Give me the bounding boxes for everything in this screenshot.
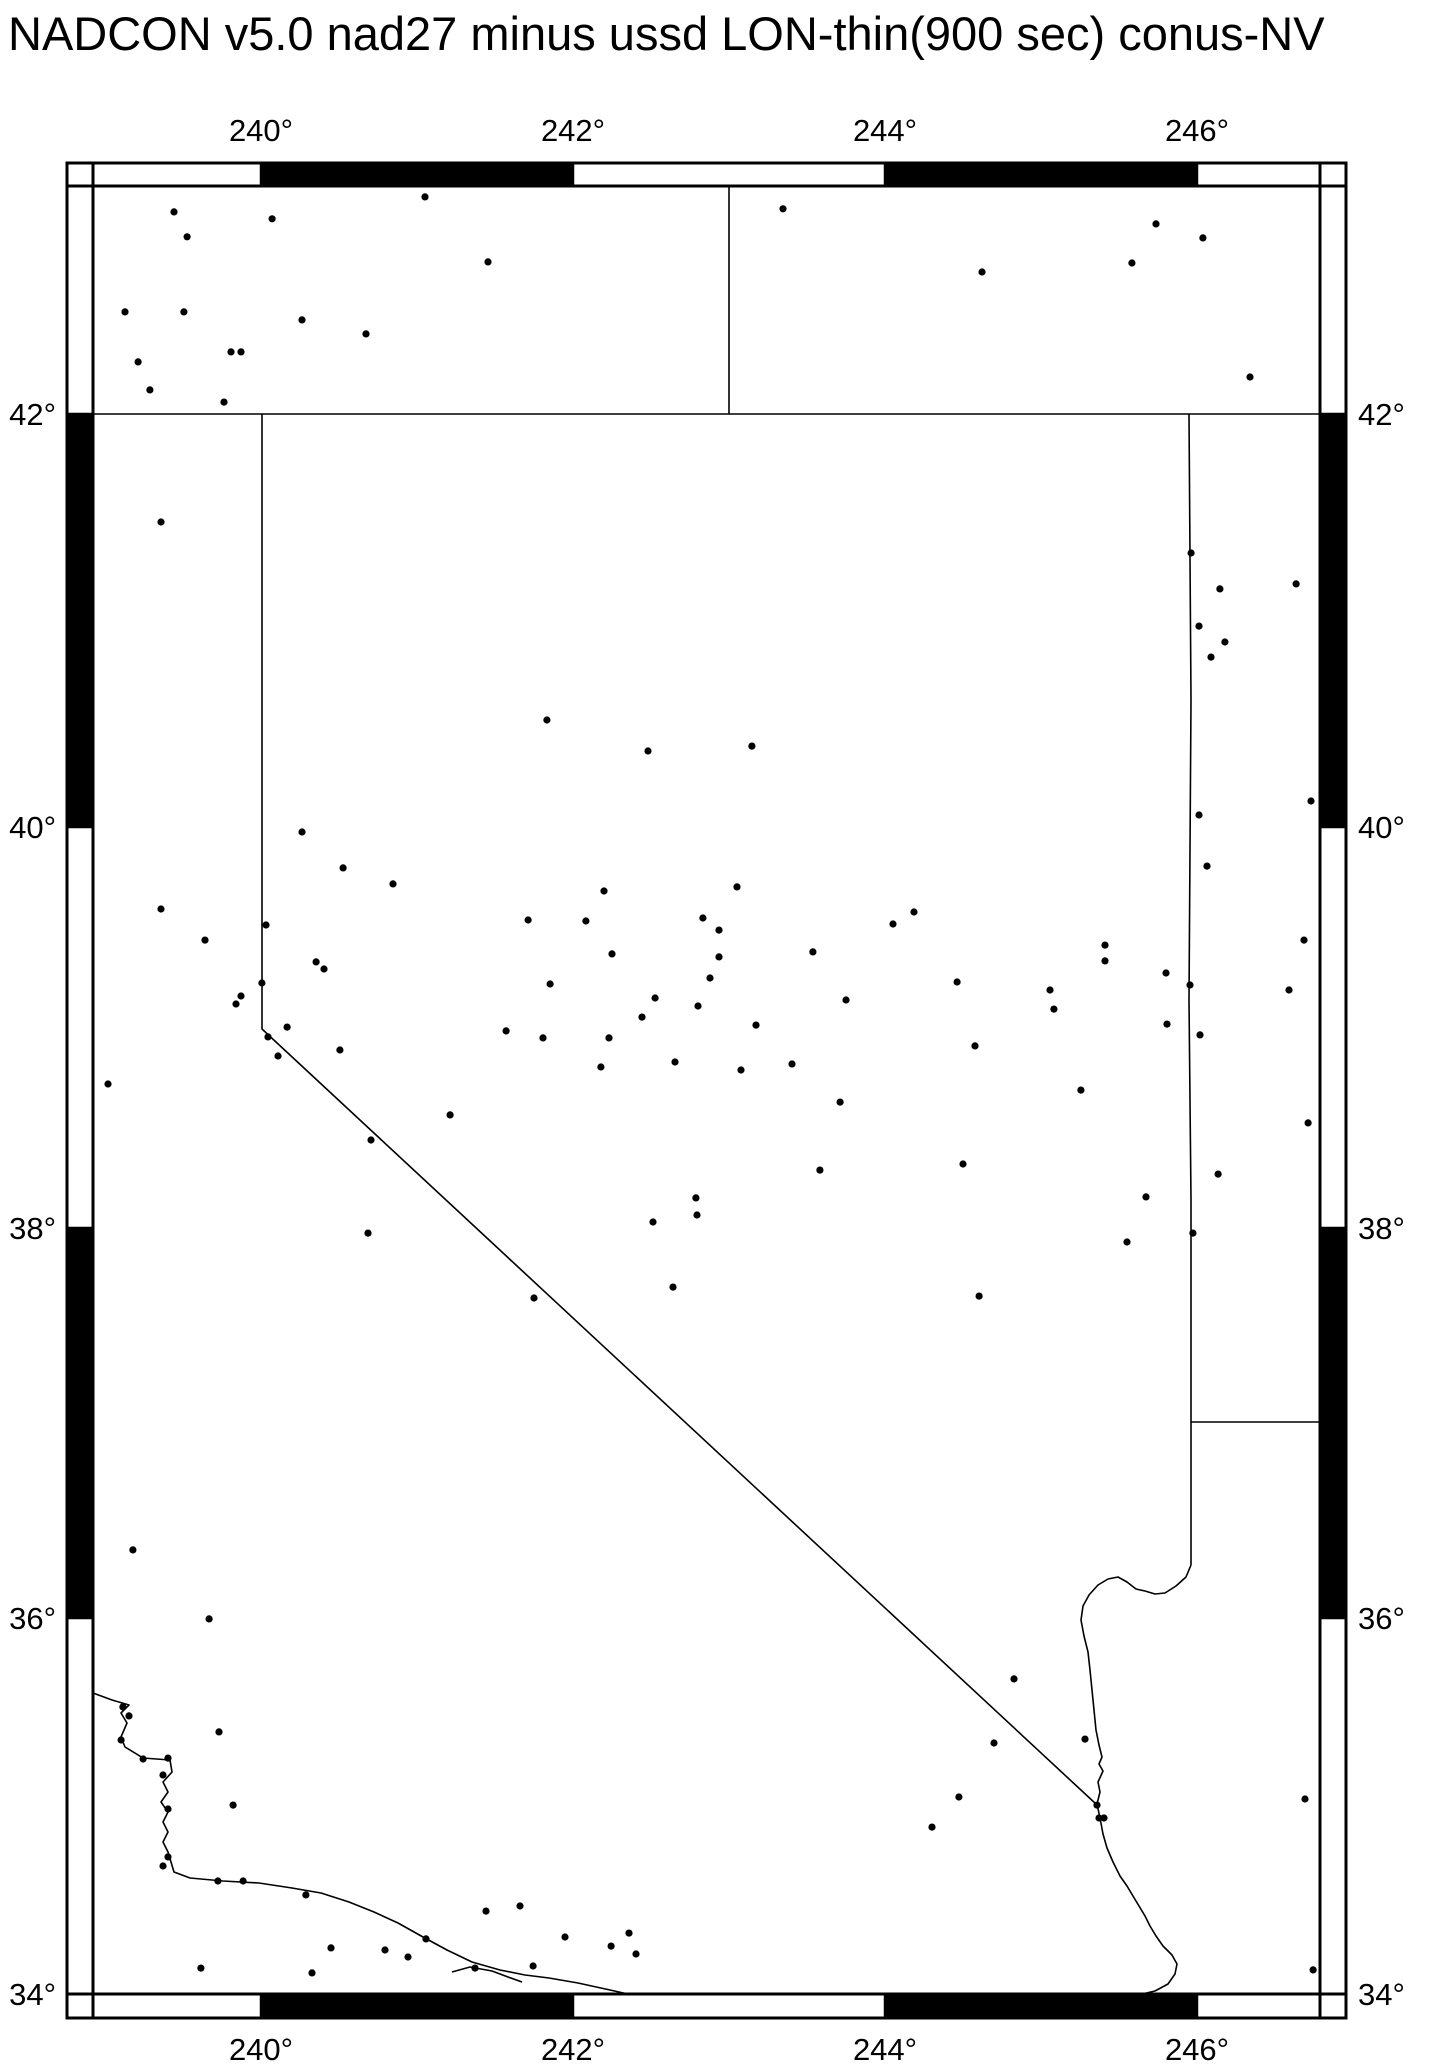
data-point <box>638 1014 645 1021</box>
data-point <box>699 914 706 921</box>
data-point <box>258 979 265 986</box>
data-point <box>1093 1802 1100 1809</box>
data-point <box>367 1136 374 1143</box>
frame-band-right <box>1320 827 1346 1228</box>
data-point <box>649 1218 656 1225</box>
frame-band-bottom <box>885 1994 1197 2018</box>
data-point <box>164 1755 171 1762</box>
data-point <box>625 1930 632 1937</box>
data-point <box>1188 549 1195 556</box>
data-point <box>582 917 589 924</box>
data-point <box>298 828 305 835</box>
x-tick-label-bottom: 244° <box>853 2032 917 2067</box>
data-point <box>706 974 713 981</box>
data-point <box>220 399 227 406</box>
data-point <box>597 1063 604 1070</box>
data-point <box>471 1965 478 1972</box>
pacific-coastline <box>93 1693 628 1994</box>
data-point <box>692 1194 699 1201</box>
data-point <box>1142 1193 1149 1200</box>
data-point <box>733 883 740 890</box>
data-point <box>525 916 532 923</box>
frame-band-right <box>1320 1618 1346 1994</box>
data-point <box>1100 1814 1107 1821</box>
frame-band-left <box>67 827 93 1228</box>
frame-band-left <box>67 1228 93 1618</box>
y-tick-label-left: 40° <box>9 810 56 845</box>
data-point <box>104 1080 111 1087</box>
data-point <box>1215 1171 1222 1178</box>
data-point <box>530 1294 537 1301</box>
frame-band-bottom <box>1197 1994 1320 2018</box>
data-point <box>422 1935 429 1942</box>
data-point <box>180 308 187 315</box>
y-tick-label-right: 36° <box>1358 1601 1405 1636</box>
data-point <box>1293 580 1300 587</box>
x-tick-label-top: 244° <box>853 113 917 148</box>
data-point <box>516 1902 523 1909</box>
frame-band-top <box>261 163 573 186</box>
data-point <box>600 887 607 894</box>
data-point <box>976 1293 983 1300</box>
x-tick-label-top: 246° <box>1165 113 1229 148</box>
data-point <box>889 920 896 927</box>
data-point <box>990 1739 997 1746</box>
frame-band-bottom <box>261 1994 573 2018</box>
y-tick-label-left: 38° <box>9 1211 56 1246</box>
data-point <box>910 908 917 915</box>
data-point <box>1162 969 1169 976</box>
data-point <box>547 980 554 987</box>
data-point <box>404 1953 411 1960</box>
x-tick-label-bottom: 240° <box>229 2032 293 2067</box>
data-point <box>262 921 269 928</box>
colorado-river <box>1081 1565 1191 1994</box>
y-tick-label-left: 34° <box>9 1977 56 2012</box>
data-point <box>561 1933 568 1940</box>
nevada-utah-border <box>1189 414 1191 1427</box>
data-point <box>671 1058 678 1065</box>
data-point <box>284 1024 291 1031</box>
data-point <box>264 1033 271 1040</box>
data-point <box>389 880 396 887</box>
data-point <box>715 953 722 960</box>
data-point <box>1195 623 1202 630</box>
data-point <box>274 1052 281 1059</box>
data-point <box>1077 1087 1084 1094</box>
data-point <box>206 1615 213 1622</box>
data-point <box>302 1891 309 1898</box>
frame-band-bottom <box>573 1994 885 2018</box>
y-tick-label-right: 34° <box>1358 1977 1405 2012</box>
data-point <box>539 1034 546 1041</box>
data-point <box>308 1969 315 1976</box>
data-point <box>118 1736 125 1743</box>
y-tick-label-left: 36° <box>9 1601 56 1636</box>
data-point <box>381 1946 388 1953</box>
data-point <box>955 1793 962 1800</box>
data-point <box>954 978 961 985</box>
data-point <box>1216 585 1223 592</box>
data-point <box>327 1944 334 1951</box>
data-point <box>1189 1230 1196 1237</box>
data-point <box>320 965 327 972</box>
data-point <box>1186 981 1193 988</box>
data-point <box>230 1802 237 1809</box>
data-point <box>119 1703 126 1710</box>
data-point <box>1010 1675 1017 1682</box>
data-point <box>159 1862 166 1869</box>
data-point <box>737 1066 744 1073</box>
data-point <box>608 1943 615 1950</box>
data-point <box>530 1962 537 1969</box>
y-tick-label-right: 40° <box>1358 810 1405 845</box>
data-point <box>157 518 164 525</box>
data-point <box>608 950 615 957</box>
frame-band-top <box>573 163 885 186</box>
data-point <box>164 1805 171 1812</box>
nevada-california-border <box>262 414 1096 1804</box>
y-tick-label-right: 38° <box>1358 1211 1405 1246</box>
data-point <box>959 1160 966 1167</box>
x-tick-label-top: 242° <box>541 113 605 148</box>
data-point <box>201 937 208 944</box>
data-point <box>1046 986 1053 993</box>
data-point <box>669 1284 676 1291</box>
data-point <box>978 268 985 275</box>
data-point <box>1152 220 1159 227</box>
data-point <box>1163 1021 1170 1028</box>
frame-outer <box>67 163 1346 2018</box>
data-point <box>227 348 234 355</box>
data-point <box>715 927 722 934</box>
channel-island-coastline <box>452 1967 522 1982</box>
data-point <box>362 330 369 337</box>
data-point <box>543 716 550 723</box>
data-point <box>484 258 491 265</box>
data-point <box>298 316 305 323</box>
data-point <box>1307 797 1314 804</box>
data-point <box>971 1042 978 1049</box>
data-point <box>1305 1119 1312 1126</box>
data-point <box>447 1111 454 1118</box>
frame-band-right <box>1320 1228 1346 1618</box>
data-point <box>605 1034 612 1041</box>
data-point <box>1101 957 1108 964</box>
data-point <box>788 1060 795 1067</box>
data-point <box>313 958 320 965</box>
data-point <box>237 992 244 999</box>
map-canvas: 240°240°242°242°244°244°246°246°42°42°40… <box>0 0 1450 2068</box>
data-point <box>135 358 142 365</box>
data-point <box>1128 259 1135 266</box>
data-point <box>694 1002 701 1009</box>
data-point <box>693 1211 700 1218</box>
frame-band-right <box>1320 186 1346 414</box>
data-point <box>1196 1031 1203 1038</box>
data-point <box>644 747 651 754</box>
data-point <box>164 1853 171 1860</box>
data-point <box>748 743 755 750</box>
data-point <box>842 996 849 1003</box>
data-point <box>197 1965 204 1972</box>
data-point <box>240 1877 247 1884</box>
y-tick-label-right: 42° <box>1358 397 1405 432</box>
data-point <box>1050 1006 1057 1013</box>
frame-band-left <box>67 1618 93 1994</box>
x-tick-label-top: 240° <box>229 113 293 148</box>
data-point <box>1123 1238 1130 1245</box>
frame-band-top <box>885 163 1197 186</box>
data-point <box>1221 638 1228 645</box>
data-point <box>1081 1736 1088 1743</box>
data-point <box>928 1824 935 1831</box>
frame-band-top <box>93 163 261 186</box>
plot-page: NADCON v5.0 nad27 minus ussd LON-thin(90… <box>0 0 1450 2068</box>
data-point <box>482 1908 489 1915</box>
data-point <box>340 864 347 871</box>
frame-band-left <box>67 186 93 414</box>
frame-band-bottom <box>93 1994 261 2018</box>
frame-band-left <box>67 414 93 827</box>
data-point <box>215 1728 222 1735</box>
data-point <box>837 1099 844 1106</box>
data-point <box>232 1000 239 1007</box>
data-point <box>632 1950 639 1957</box>
data-point <box>269 215 276 222</box>
x-tick-label-bottom: 242° <box>541 2032 605 2067</box>
data-point <box>809 948 816 955</box>
data-point <box>779 205 786 212</box>
data-point <box>336 1046 343 1053</box>
data-point <box>1195 811 1202 818</box>
data-point <box>121 308 128 315</box>
data-point <box>752 1022 759 1029</box>
data-point <box>1301 1795 1308 1802</box>
data-point <box>170 208 177 215</box>
data-point <box>503 1027 510 1034</box>
frame-band-right <box>1320 414 1346 827</box>
data-point <box>125 1712 132 1719</box>
data-point <box>421 193 428 200</box>
data-point <box>364 1230 371 1237</box>
data-point <box>1310 1966 1317 1973</box>
data-point <box>1285 986 1292 993</box>
data-point <box>816 1167 823 1174</box>
data-point <box>652 994 659 1001</box>
data-point <box>1300 937 1307 944</box>
data-point <box>146 386 153 393</box>
data-point <box>1203 863 1210 870</box>
data-point <box>159 1771 166 1778</box>
data-point <box>1199 234 1206 241</box>
frame-band-top <box>1197 163 1320 186</box>
data-point <box>1101 942 1108 949</box>
data-point <box>129 1546 136 1553</box>
data-point <box>184 233 191 240</box>
data-point <box>237 348 244 355</box>
y-tick-label-left: 42° <box>9 397 56 432</box>
data-point <box>1207 654 1214 661</box>
x-tick-label-bottom: 246° <box>1165 2032 1229 2067</box>
data-point <box>214 1877 221 1884</box>
data-point <box>140 1755 147 1762</box>
data-point <box>1246 373 1253 380</box>
data-point <box>157 905 164 912</box>
